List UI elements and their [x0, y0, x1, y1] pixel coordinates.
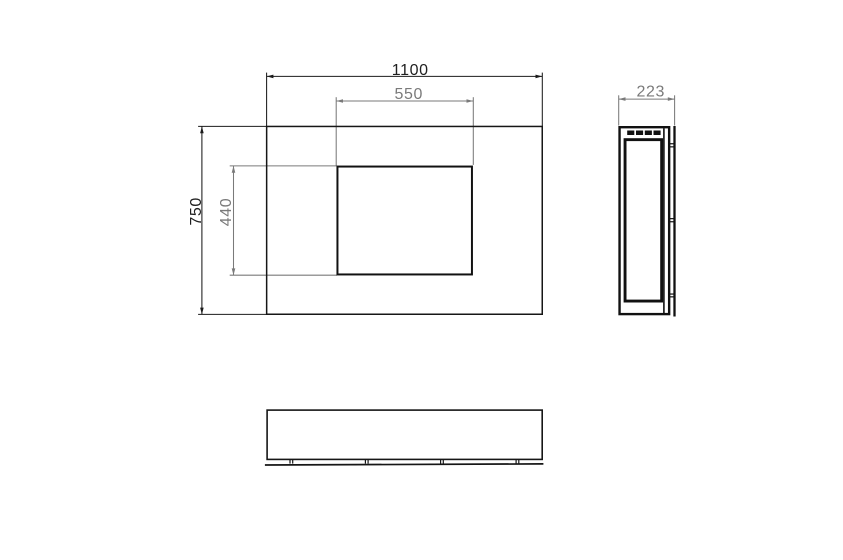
svg-text:440: 440	[218, 198, 235, 227]
svg-text:223: 223	[637, 84, 666, 101]
svg-text:750: 750	[188, 197, 205, 226]
svg-text:550: 550	[395, 86, 424, 103]
svg-text:1100: 1100	[392, 62, 429, 79]
